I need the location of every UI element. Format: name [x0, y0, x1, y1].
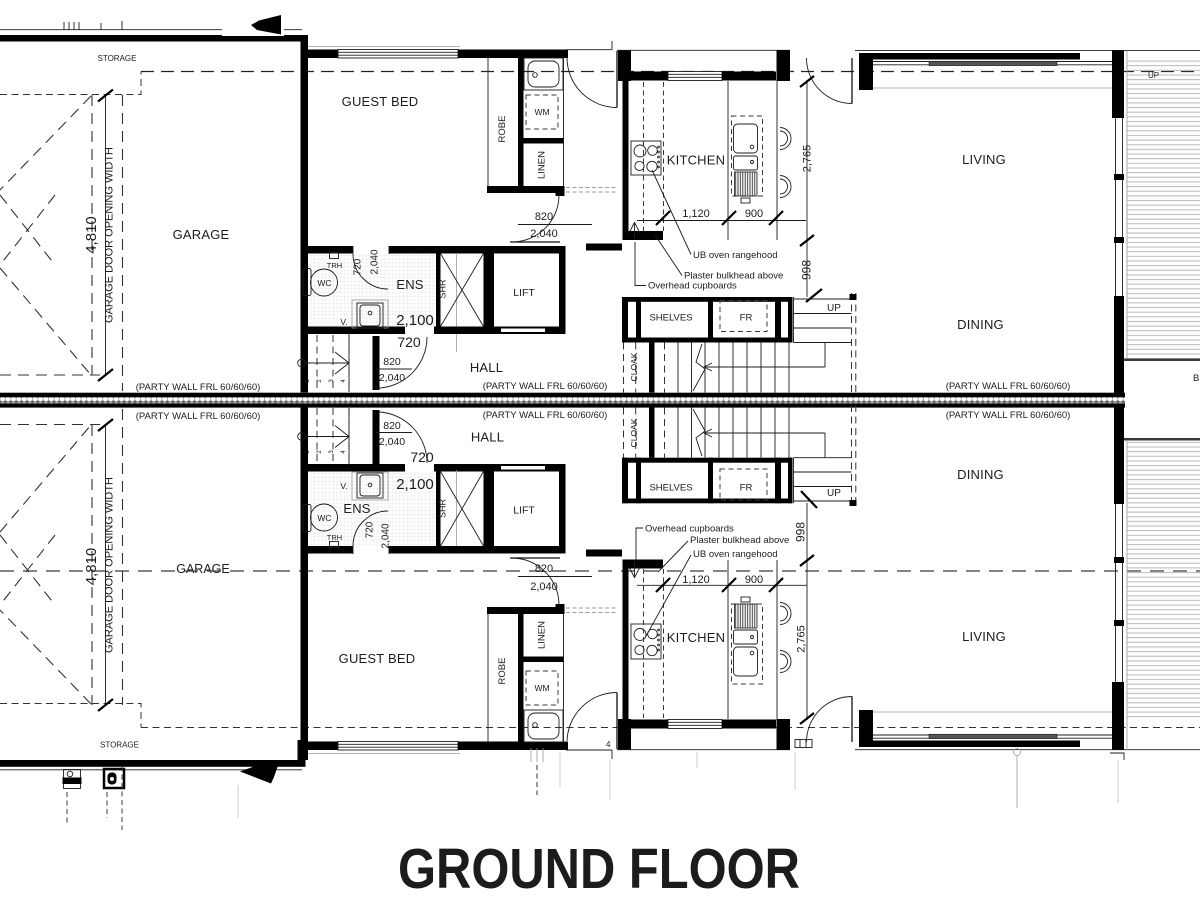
- svg-text:GUEST BED: GUEST BED: [339, 651, 416, 666]
- svg-text:GUEST BED: GUEST BED: [342, 94, 419, 109]
- svg-text:V.: V.: [340, 481, 347, 491]
- svg-text:900: 900: [745, 574, 763, 586]
- svg-text:CLOAK: CLOAK: [629, 418, 639, 447]
- svg-text:(PARTY WALL FRL 60/60/60): (PARTY WALL FRL 60/60/60): [946, 410, 1071, 421]
- svg-text:CLOAK: CLOAK: [629, 352, 639, 381]
- svg-text:KITCHEN: KITCHEN: [667, 630, 725, 645]
- svg-text:SHELVES: SHELVES: [649, 313, 692, 324]
- svg-text:ROBE: ROBE: [497, 658, 508, 685]
- svg-text:820: 820: [535, 211, 553, 223]
- svg-text:STORAGE: STORAGE: [98, 54, 137, 63]
- svg-text:820: 820: [383, 356, 401, 368]
- svg-text:UB oven rangehood: UB oven rangehood: [693, 250, 778, 261]
- svg-text:(PARTY WALL FRL 60/60/60): (PARTY WALL FRL 60/60/60): [483, 410, 608, 421]
- svg-text:LINEN: LINEN: [537, 621, 548, 649]
- svg-text:4: 4: [606, 740, 611, 749]
- svg-text:4,810: 4,810: [83, 216, 100, 254]
- svg-text:720: 720: [397, 334, 421, 350]
- svg-text:Overhead cupboards: Overhead cupboards: [648, 281, 737, 292]
- svg-text:2,040: 2,040: [381, 523, 392, 548]
- svg-text:LIFT: LIFT: [513, 505, 535, 517]
- svg-text:998: 998: [800, 260, 814, 280]
- svg-text:GARAGE DOOR OPENING WIDTH: GARAGE DOOR OPENING WIDTH: [104, 477, 116, 653]
- svg-text:Overhead cupboards: Overhead cupboards: [645, 524, 734, 535]
- svg-text:2,765: 2,765: [802, 145, 814, 173]
- svg-text:GARAGE DOOR OPENING WIDTH: GARAGE DOOR OPENING WIDTH: [104, 147, 116, 323]
- svg-text:1,120: 1,120: [682, 574, 710, 586]
- svg-text:UP: UP: [827, 303, 841, 314]
- svg-text:720: 720: [353, 258, 364, 275]
- svg-text:UP: UP: [827, 488, 841, 499]
- svg-text:2,040: 2,040: [379, 436, 405, 448]
- svg-text:720: 720: [365, 521, 376, 538]
- svg-text:KITCHEN: KITCHEN: [667, 153, 725, 168]
- svg-text:LIVING: LIVING: [962, 629, 1006, 644]
- svg-text:SHR: SHR: [438, 499, 448, 519]
- svg-text:SHELVES: SHELVES: [649, 483, 692, 494]
- svg-text:ENS: ENS: [343, 501, 370, 516]
- svg-text:900: 900: [745, 208, 763, 220]
- svg-text:ENS: ENS: [396, 277, 423, 292]
- svg-text:FR: FR: [740, 313, 753, 324]
- svg-text:(PARTY WALL FRL 60/60/60): (PARTY WALL FRL 60/60/60): [483, 381, 608, 392]
- svg-text:2,040: 2,040: [530, 228, 558, 240]
- svg-text:1,120: 1,120: [682, 208, 710, 220]
- svg-text:WM: WM: [534, 107, 549, 117]
- svg-text:(PARTY WALL FRL 60/60/60): (PARTY WALL FRL 60/60/60): [136, 382, 261, 393]
- svg-text:GROUND FLOOR: GROUND FLOOR: [398, 838, 800, 900]
- svg-text:GARAGE: GARAGE: [176, 562, 230, 576]
- svg-text:ROBE: ROBE: [497, 116, 508, 143]
- svg-text:UP: UP: [1148, 71, 1159, 80]
- svg-text:LIVING: LIVING: [962, 152, 1006, 167]
- svg-text:(PARTY WALL FRL 60/60/60): (PARTY WALL FRL 60/60/60): [136, 411, 261, 422]
- svg-text:SHR: SHR: [438, 279, 448, 299]
- svg-text:Plaster bulkhead above: Plaster bulkhead above: [690, 535, 789, 546]
- svg-text:820: 820: [535, 563, 553, 575]
- svg-text:820: 820: [383, 420, 401, 432]
- svg-text:LIFT: LIFT: [513, 287, 535, 299]
- svg-text:998: 998: [794, 522, 808, 542]
- svg-text:2,040: 2,040: [530, 581, 558, 593]
- svg-text:FR: FR: [740, 483, 753, 494]
- svg-text:2,040: 2,040: [379, 372, 405, 384]
- svg-text:LINEN: LINEN: [537, 151, 548, 179]
- svg-text:(PARTY WALL FRL 60/60/60): (PARTY WALL FRL 60/60/60): [946, 381, 1071, 392]
- svg-text:TRH: TRH: [327, 261, 342, 270]
- svg-text:WC: WC: [317, 513, 331, 523]
- svg-text:STORAGE: STORAGE: [100, 741, 139, 750]
- svg-text:DINING: DINING: [957, 467, 1004, 482]
- svg-text:UB oven rangehood: UB oven rangehood: [693, 549, 778, 560]
- svg-text:HALL: HALL: [471, 430, 504, 445]
- svg-text:HALL: HALL: [470, 360, 503, 375]
- svg-text:GARAGE: GARAGE: [173, 227, 230, 242]
- svg-text:V.: V.: [340, 317, 347, 327]
- svg-text:4,810: 4,810: [83, 548, 100, 586]
- svg-text:2,100: 2,100: [396, 476, 434, 493]
- svg-text:BED: BED: [1193, 373, 1200, 384]
- svg-text:TRH: TRH: [327, 533, 342, 542]
- svg-text:2,040: 2,040: [370, 249, 381, 274]
- svg-text:DINING: DINING: [957, 317, 1004, 332]
- svg-text:2,765: 2,765: [796, 625, 808, 653]
- svg-text:2,100: 2,100: [396, 312, 434, 329]
- svg-text:WM: WM: [534, 683, 549, 693]
- svg-text:WC: WC: [317, 278, 331, 288]
- svg-text:720: 720: [410, 449, 434, 465]
